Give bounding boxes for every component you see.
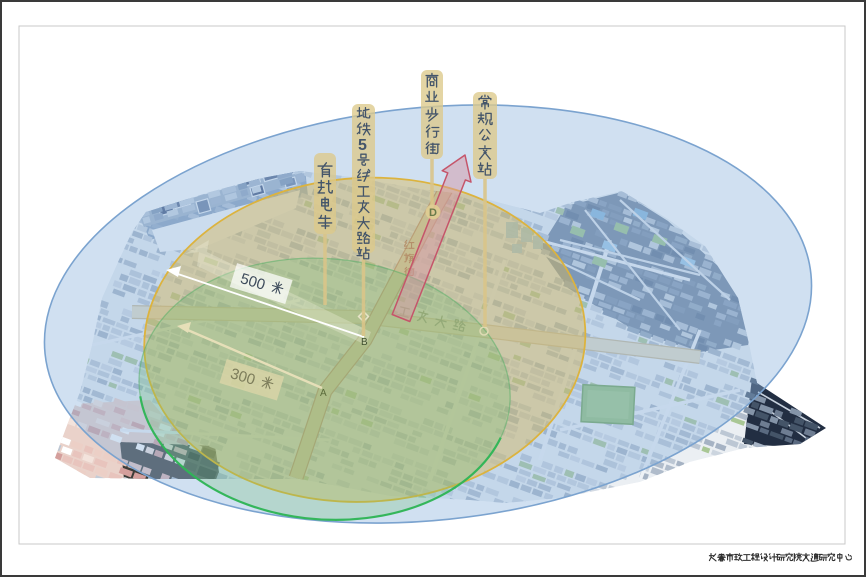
- svg-text:D: D: [429, 207, 437, 219]
- svg-text:A: A: [320, 388, 327, 399]
- svg-text:5: 5: [358, 137, 367, 154]
- svg-text:B: B: [361, 337, 368, 348]
